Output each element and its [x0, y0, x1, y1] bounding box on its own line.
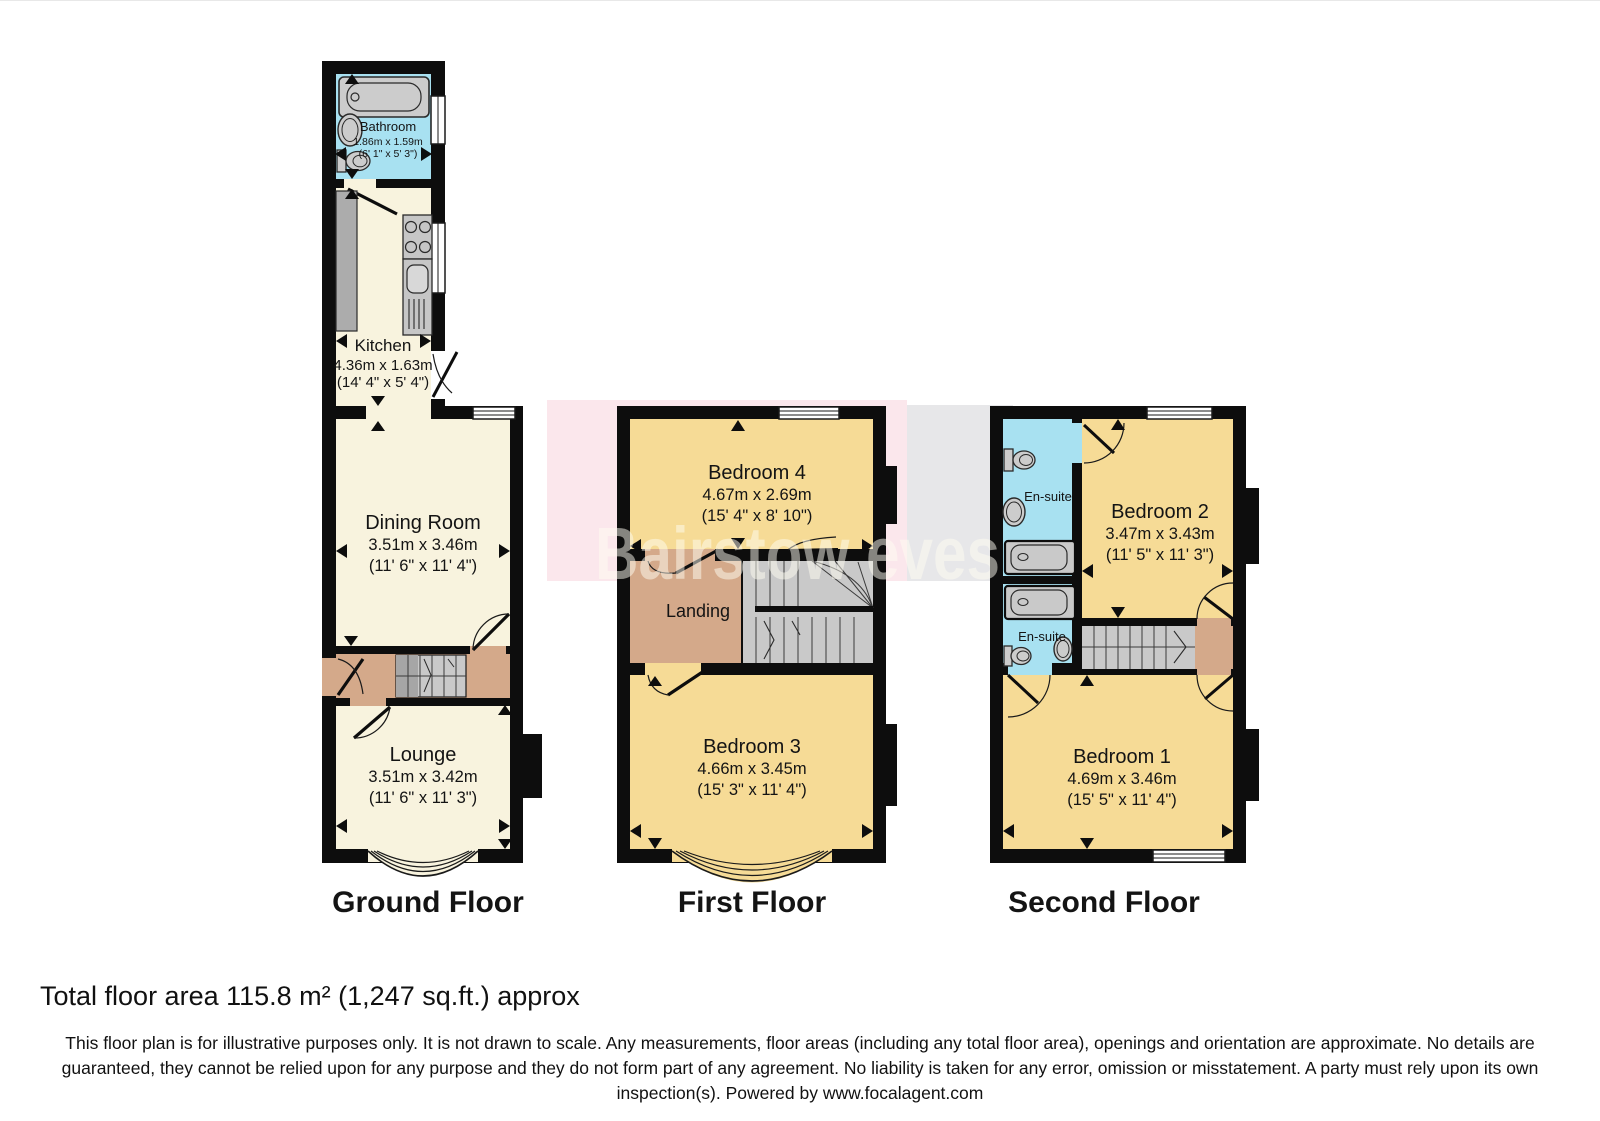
ground-floor-plan: Bathroom 1.86m x 1.59m (6' 1" x 5' 3") K… [322, 61, 542, 877]
room-dim-imperial: (15' 3" x 11' 4") [697, 781, 806, 799]
bay-window [672, 849, 832, 883]
ground-floor-title: Ground Floor [332, 886, 524, 919]
bay-window [368, 849, 478, 877]
window [1147, 407, 1212, 419]
wall-stub [336, 406, 366, 419]
room-label: En-suite [1024, 489, 1072, 504]
cooker-icon [403, 215, 432, 259]
room-dim-metric: 3.51m x 3.42m [368, 768, 477, 786]
sink-icon [1003, 498, 1025, 526]
room-dim-imperial: (6' 1" x 5' 3") [359, 148, 418, 160]
room-label: Bathroom [360, 119, 416, 134]
room-label: Landing [666, 601, 730, 621]
door-opening [350, 698, 386, 706]
second-floor-title: Second Floor [1008, 886, 1200, 919]
back-door-opening [431, 351, 445, 399]
room-dim-metric: 4.67m x 2.69m [702, 486, 811, 504]
first-floor-title: First Floor [678, 886, 827, 919]
floorplan-page: Bathroom 1.86m x 1.59m (6' 1" x 5' 3") K… [0, 0, 1600, 1121]
room-label: Kitchen [355, 336, 412, 355]
room-dim-imperial: (11' 6" x 11' 4") [369, 557, 477, 575]
chimney-breast [1233, 488, 1259, 564]
chimney-breast [873, 724, 897, 806]
window [1153, 850, 1225, 862]
window [779, 407, 839, 419]
chimney-breast [1233, 729, 1259, 801]
door-opening [645, 663, 701, 675]
bathtub-icon [1005, 586, 1075, 619]
room-dim-metric: 1.86m x 1.59m [353, 136, 423, 148]
door-opening [1197, 669, 1231, 675]
window [431, 223, 445, 293]
door-opening [1008, 663, 1052, 675]
room-label: Bedroom 3 [703, 736, 801, 758]
room-label: Bedroom 2 [1111, 501, 1209, 523]
bathtub-icon [1005, 541, 1075, 574]
room-label: Bedroom 1 [1073, 746, 1171, 768]
room-label: Lounge [390, 744, 457, 766]
window [473, 407, 515, 419]
room-label: En-suite [1018, 629, 1066, 644]
room-dim-metric: 3.47m x 3.43m [1105, 525, 1214, 543]
room-dim-metric: 4.66m x 3.45m [697, 760, 806, 778]
window [431, 96, 445, 144]
landing [1195, 626, 1233, 669]
room-dim-imperial: (15' 5" x 11' 4") [1067, 791, 1176, 809]
front-door-opening [322, 658, 336, 696]
room-dim-metric: 4.36m x 1.63m [333, 357, 432, 374]
total-floor-area: Total floor area 115.8 m² (1,247 sq.ft.)… [40, 981, 580, 1012]
room-label: Bedroom 4 [708, 462, 806, 484]
toilet-icon [1004, 646, 1031, 666]
first-floor-plan: Bedroom 4 4.67m x 2.69m (15' 4" x 8' 10"… [617, 406, 897, 883]
room-label: Dining Room [365, 512, 481, 534]
kitchen-counter [336, 191, 357, 331]
second-floor-plan: En-suite En-suite Bedroom 2 3.47m x 3.43… [990, 406, 1259, 863]
toilet-icon [1004, 449, 1035, 471]
chimney-breast [512, 734, 542, 798]
room-dim-imperial: (14' 4" x 5' 4") [337, 374, 429, 391]
floorplan-drawing: Bathroom 1.86m x 1.59m (6' 1" x 5' 3") K… [0, 1, 1600, 1121]
room-dim-imperial: (11' 6" x 11' 3") [369, 789, 477, 807]
room-dim-imperial: (11' 5" x 11' 3") [1106, 546, 1214, 564]
disclaimer-text: This floor plan is for illustrative purp… [40, 1031, 1560, 1106]
door-opening [1197, 618, 1231, 626]
watermark-text: Bairstow eves [595, 512, 1000, 595]
door-opening [1072, 423, 1082, 463]
room-dim-metric: 3.51m x 3.46m [368, 536, 477, 554]
stairs [396, 655, 466, 697]
kitchen-sink-icon [403, 259, 432, 335]
room-dim-metric: 4.69m x 3.46m [1067, 770, 1176, 788]
door-opening [344, 179, 376, 188]
